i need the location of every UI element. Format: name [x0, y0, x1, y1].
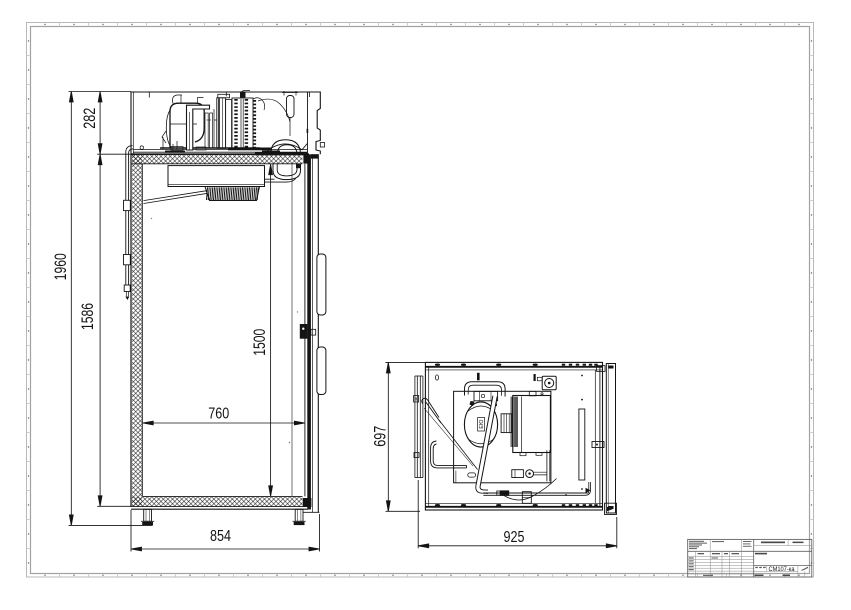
svg-text:282: 282	[80, 108, 99, 129]
svg-text:760: 760	[208, 406, 229, 423]
svg-text:ЕЮ: ЕЮ	[479, 419, 485, 429]
svg-text:697: 697	[371, 426, 390, 447]
svg-text:1586: 1586	[78, 303, 97, 330]
svg-text:CM107-ка: CM107-ка	[769, 566, 795, 573]
svg-text:1960: 1960	[51, 253, 70, 280]
svg-text:854: 854	[210, 528, 231, 545]
svg-text:925: 925	[504, 529, 525, 546]
svg-text:1500: 1500	[250, 329, 269, 356]
